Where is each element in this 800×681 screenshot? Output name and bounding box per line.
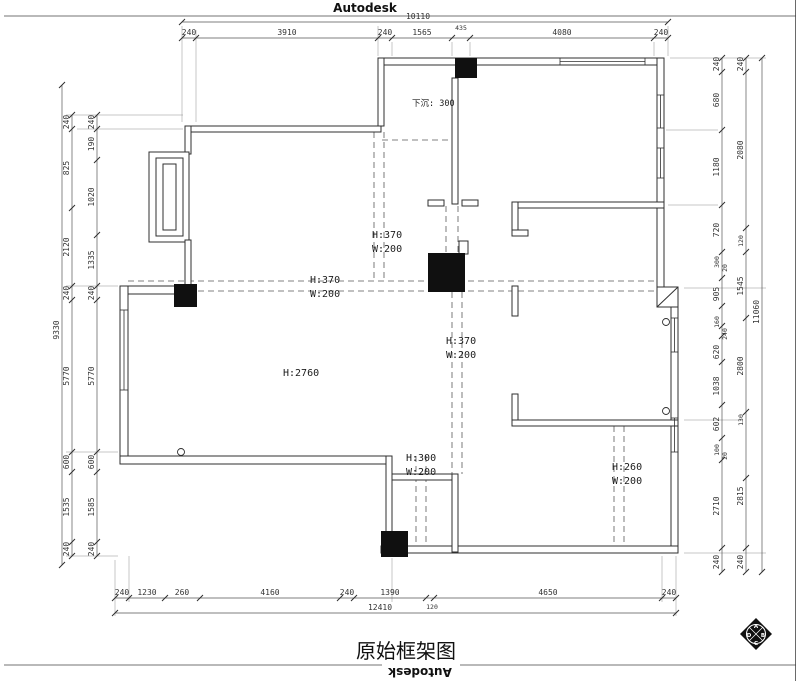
logo-letter-top: A	[754, 624, 759, 630]
dim-text: 2080	[736, 140, 745, 159]
wall-bottom	[381, 546, 678, 553]
beam-label: H:260	[612, 462, 642, 473]
wall-upper-room-left-b	[185, 240, 191, 290]
dim-text: 825	[62, 161, 71, 176]
dim-text: 1335	[87, 250, 96, 269]
dim-text: 2120	[62, 237, 71, 256]
columns	[174, 58, 477, 557]
dim-text: 2710	[712, 496, 721, 515]
dim-text: 240	[87, 115, 96, 130]
fixture-circle	[663, 408, 670, 415]
wall-bottom-left	[120, 456, 392, 464]
beam-label: W:200	[372, 244, 402, 255]
dim-text: 600	[62, 455, 71, 470]
dim-text: 1535	[62, 497, 71, 516]
dim-text: 680	[712, 93, 721, 108]
dim-text: 620	[712, 345, 721, 360]
dim-text: 300	[713, 256, 721, 268]
dim-text: 1390	[380, 588, 399, 597]
dim-text: 240	[87, 286, 96, 301]
dim-text: 240	[340, 588, 355, 597]
dim-text: 435	[455, 24, 467, 32]
dim-text: 100	[713, 444, 721, 456]
compass-logo-icon: A D B C	[740, 618, 772, 650]
beam-label: H:300	[406, 453, 436, 464]
dim-text: 240	[721, 328, 729, 340]
dim-text: 240	[182, 28, 197, 37]
dim-text: 2800	[736, 356, 745, 375]
dim-text: 1565	[412, 28, 431, 37]
wall-plumbing	[452, 78, 458, 204]
wall-right-mid-stub-b	[512, 394, 518, 420]
dim-text: 5770	[62, 366, 71, 385]
dim-text: 2815	[736, 486, 745, 505]
beam-label: W:200	[406, 467, 436, 478]
door-leaf	[459, 241, 468, 254]
bay-window-inner	[163, 164, 176, 230]
dim-text: 240	[736, 555, 745, 570]
wall-upper-room-left-a	[185, 126, 191, 154]
autodesk-watermark-top: Autodesk	[333, 1, 398, 15]
dim-text: 720	[712, 223, 721, 238]
dim-text: 600	[87, 455, 96, 470]
dim-text: 3910	[277, 28, 296, 37]
wall-bottom-right-room-top	[512, 420, 678, 426]
drawing-title: 原始框架图	[356, 639, 456, 663]
logo-letter-left: D	[747, 633, 752, 639]
dim-text: 1585	[87, 497, 96, 516]
dim-text: 130	[737, 414, 745, 426]
dim-text: 9330	[52, 320, 61, 339]
dim-text: 240	[62, 115, 71, 130]
dim-text: 190	[87, 137, 96, 152]
drawing-sheet: Autodesk Autodesk 原始框架图	[0, 0, 800, 681]
column-bottom	[381, 531, 408, 557]
annotations: 下沉: 300 H:370 W:200 H:370 W:200 H:370 W:…	[283, 99, 642, 487]
dim-text: 240	[712, 555, 721, 570]
wall-bottom-mid-vertical	[452, 474, 458, 552]
dim-text: 160	[713, 316, 721, 328]
dim-text: 12410	[368, 603, 392, 612]
dim-text: 260	[175, 588, 190, 597]
dim-text: 4160	[260, 588, 279, 597]
beam-label: H:370	[310, 275, 340, 286]
dim-text: 1020	[87, 187, 96, 206]
autodesk-watermark-bottom: Autodesk	[387, 665, 452, 679]
dim-text: 11060	[752, 300, 761, 324]
dim-text: 240	[115, 588, 130, 597]
dim-text: 4650	[538, 588, 557, 597]
dim-text: 240	[712, 57, 721, 72]
wall-top-right-room-bottom	[512, 202, 664, 208]
dim-text: 10110	[406, 12, 430, 21]
ceiling-height-label: H:2760	[283, 368, 319, 379]
logo-letter-right: B	[761, 633, 765, 639]
dim-text: 120	[737, 235, 745, 247]
dim-text: 602	[712, 417, 721, 432]
dim-text: 1230	[137, 588, 156, 597]
beam-label: W:200	[310, 289, 340, 300]
beam-label: H:370	[372, 230, 402, 241]
dim-text: 240	[662, 588, 677, 597]
column-top	[455, 58, 477, 78]
wall-upper-room-top	[185, 126, 381, 132]
logo-letter-bottom: C	[754, 641, 758, 647]
dim-text: 20	[721, 264, 729, 272]
beam-label: W:200	[612, 476, 642, 487]
dim-text: 240	[62, 286, 71, 301]
left-dimension-chain: 240 825 2120 240 5770 600 1535 240 240 1…	[52, 82, 100, 568]
fixture-circle	[178, 449, 185, 456]
dim-text: 240	[87, 542, 96, 557]
dim-text: 240	[378, 28, 393, 37]
dim-text: 1545	[736, 276, 745, 295]
walls	[120, 58, 678, 553]
dim-text: 5770	[87, 366, 96, 385]
wall-right-mid-stub-a	[512, 286, 518, 316]
wall-plumbing-foot-b	[462, 200, 478, 206]
wall-niche	[512, 230, 528, 236]
column-center	[428, 253, 465, 292]
dim-text: 1038	[712, 376, 721, 395]
bottom-dimension-chain: 240 1230 260 4160 240 1390 120 4650 240 …	[112, 588, 679, 616]
sunken-label: 下沉: 300	[412, 99, 455, 109]
wall-plumbing-foot-a	[428, 200, 444, 206]
dim-text: 240	[654, 28, 669, 37]
wall-top-mid-left	[378, 58, 384, 126]
dim-text: 905	[712, 287, 721, 302]
dim-text: 120	[426, 603, 438, 611]
floor-plan: Autodesk Autodesk 原始框架图	[0, 0, 800, 681]
dim-text: 240	[62, 542, 71, 557]
dim-text: 20	[721, 452, 729, 460]
windows	[120, 58, 678, 456]
fixture-circle	[663, 319, 670, 326]
dim-text: 4080	[552, 28, 571, 37]
beam-label: W:200	[446, 350, 476, 361]
right-dimension-chain: 240 680 1180 720 300 20 905 160 240 620 …	[712, 55, 765, 575]
dim-text: 240	[736, 57, 745, 72]
column-left	[174, 284, 197, 307]
beam-label: H:370	[446, 336, 476, 347]
dim-text: 1180	[712, 157, 721, 176]
